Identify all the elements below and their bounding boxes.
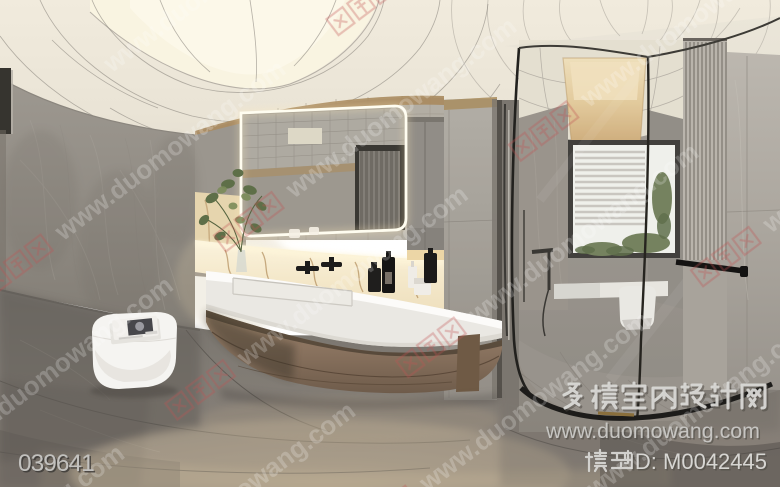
svg-text:www.duomowang.com: www.duomowang.com [545, 419, 760, 443]
svg-text:ID: M0042445: ID: M0042445 [629, 449, 767, 474]
svg-text:039641: 039641 [18, 450, 94, 477]
